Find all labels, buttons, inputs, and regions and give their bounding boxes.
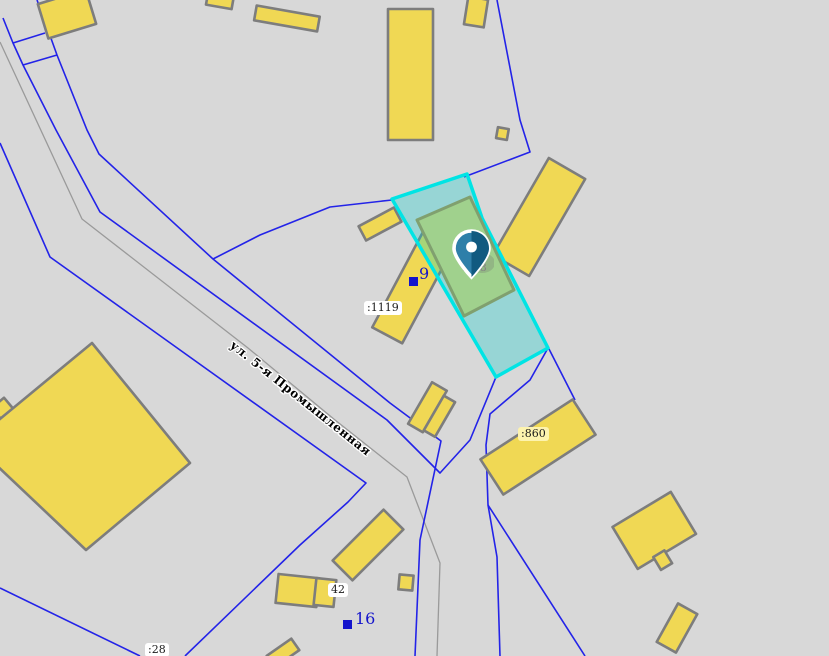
parcel-label-28: :28 [145, 643, 169, 656]
building[interactable] [206, 0, 234, 9]
cadastral-map-canvas[interactable]: :1119 :108 :860 42 :28 9 16 ул. 5-я Пром… [0, 0, 829, 656]
building[interactable] [398, 574, 413, 590]
parcel-boundary-line [23, 55, 57, 65]
parcel-boundary-line [13, 33, 45, 43]
building[interactable] [359, 208, 402, 241]
building[interactable] [496, 127, 509, 140]
location-pin-icon [452, 229, 494, 281]
building[interactable] [464, 0, 488, 27]
parcel-boundary-line [0, 588, 140, 656]
parcel-label-1119: :1119 [364, 301, 402, 315]
street-centerline [0, 42, 440, 656]
building[interactable] [38, 0, 96, 39]
pin-center-dot [466, 242, 477, 253]
address-label-16: 16 [355, 611, 375, 627]
address-label-42: 42 [328, 583, 348, 597]
building[interactable] [0, 343, 190, 550]
address-marker-square-16 [343, 620, 352, 629]
building[interactable] [333, 510, 404, 581]
parcel-boundary-line [486, 348, 548, 656]
building[interactable] [388, 9, 433, 140]
address-marker-square-9 [409, 277, 418, 286]
parcel-boundary-line [549, 349, 575, 400]
building[interactable] [254, 6, 320, 32]
building[interactable] [493, 158, 585, 276]
building[interactable] [267, 639, 300, 656]
building[interactable] [480, 399, 595, 494]
map-svg [0, 0, 829, 656]
parcel-label-860: :860 [518, 427, 549, 441]
address-label-9: 9 [419, 266, 429, 282]
building[interactable] [657, 603, 698, 652]
parcel-boundary-line [488, 505, 585, 656]
